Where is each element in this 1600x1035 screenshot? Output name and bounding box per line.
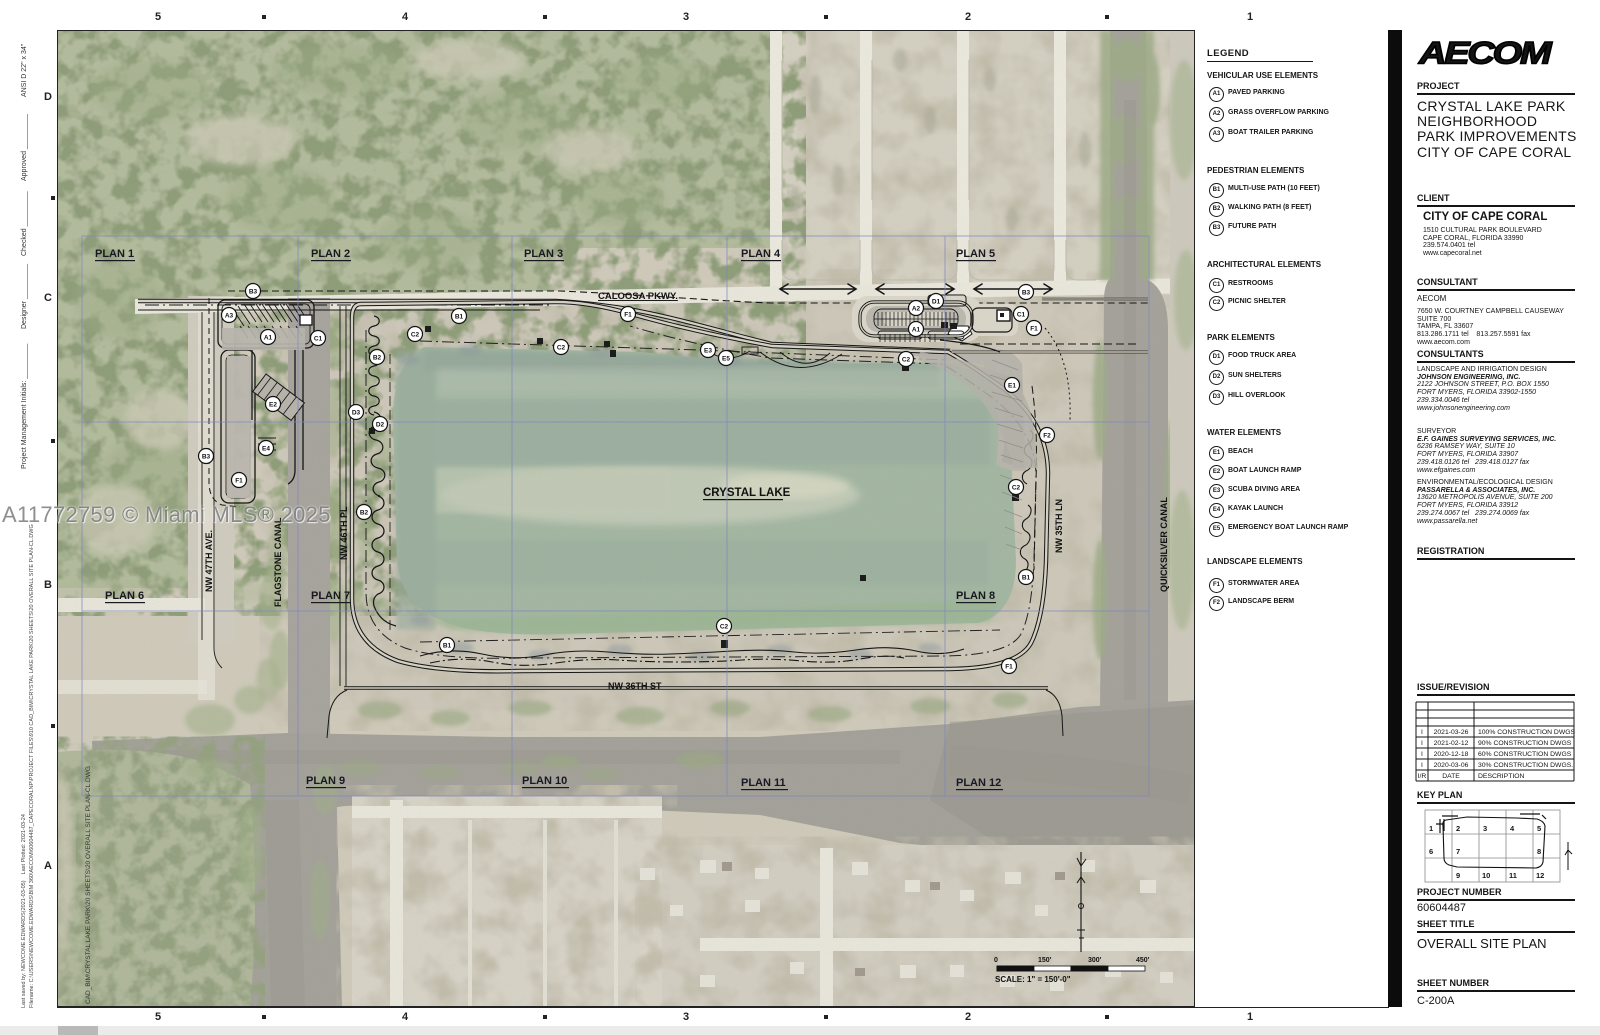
svg-text:6: 6 bbox=[1429, 847, 1433, 856]
svg-text:PLAN 2: PLAN 2 bbox=[311, 248, 350, 260]
svg-text:PLAN 8: PLAN 8 bbox=[956, 590, 995, 602]
svg-text:I: I bbox=[1421, 762, 1423, 769]
svg-text:2021-02-12: 2021-02-12 bbox=[1434, 740, 1469, 747]
svg-text:I: I bbox=[1421, 751, 1423, 758]
svg-text:E2: E2 bbox=[269, 402, 277, 409]
svg-text:PLAN 4: PLAN 4 bbox=[741, 248, 781, 260]
svg-text:E4: E4 bbox=[262, 446, 270, 453]
svg-text:C2: C2 bbox=[411, 332, 420, 339]
svg-text:A2: A2 bbox=[912, 306, 921, 313]
svg-text:CALOOSA PKWY.: CALOOSA PKWY. bbox=[598, 291, 678, 302]
svg-text:C1: C1 bbox=[314, 336, 323, 343]
svg-text:B1: B1 bbox=[455, 314, 464, 321]
svg-text:C2: C2 bbox=[902, 357, 911, 364]
svg-text:12: 12 bbox=[1536, 871, 1544, 880]
svg-text:2020-03-06: 2020-03-06 bbox=[1434, 762, 1469, 769]
svg-text:PLAN 9: PLAN 9 bbox=[306, 775, 345, 787]
svg-text:60% CONSTRUCTION DWGS: 60% CONSTRUCTION DWGS bbox=[1478, 751, 1572, 758]
svg-text:9: 9 bbox=[1456, 871, 1460, 880]
svg-text:B2: B2 bbox=[360, 510, 369, 517]
svg-text:E1: E1 bbox=[1008, 383, 1016, 390]
svg-text:CAD_BIM\CRYSTAL LAKE PARK\20 S: CAD_BIM\CRYSTAL LAKE PARK\20 SHEETS\20 O… bbox=[85, 766, 92, 1004]
svg-text:450': 450' bbox=[1136, 957, 1150, 964]
svg-text:5: 5 bbox=[1537, 824, 1541, 833]
svg-text:150': 150' bbox=[1038, 957, 1052, 964]
svg-text:F1: F1 bbox=[1005, 664, 1013, 671]
svg-text:1: 1 bbox=[1429, 824, 1433, 833]
svg-text:2: 2 bbox=[1456, 824, 1460, 833]
svg-text:CRYSTAL LAKE: CRYSTAL LAKE bbox=[703, 487, 791, 499]
svg-text:F1: F1 bbox=[624, 312, 632, 319]
svg-text:C2: C2 bbox=[1012, 485, 1021, 492]
svg-text:D3: D3 bbox=[352, 410, 361, 417]
svg-text:D1: D1 bbox=[932, 299, 941, 306]
svg-text:QUICKSILVER CANAL: QUICKSILVER CANAL bbox=[1159, 497, 1169, 592]
svg-text:NW 35TH LN: NW 35TH LN bbox=[1054, 499, 1064, 553]
svg-text:10: 10 bbox=[1482, 871, 1490, 880]
svg-text:PLAN 10: PLAN 10 bbox=[522, 775, 567, 787]
svg-text:B3: B3 bbox=[249, 289, 258, 296]
svg-text:A1: A1 bbox=[912, 327, 921, 334]
svg-text:8: 8 bbox=[1537, 847, 1541, 856]
svg-text:A1: A1 bbox=[264, 335, 273, 342]
svg-text:PLAN 3: PLAN 3 bbox=[524, 248, 563, 260]
svg-text:B1: B1 bbox=[1022, 575, 1031, 582]
svg-text:FLAGSTONE CANAL: FLAGSTONE CANAL bbox=[273, 517, 283, 607]
svg-text:I/R: I/R bbox=[1418, 773, 1427, 780]
svg-text:90% CONSTRUCTION DWGS: 90% CONSTRUCTION DWGS bbox=[1478, 740, 1572, 747]
svg-text:4: 4 bbox=[1510, 824, 1515, 833]
svg-text:E3: E3 bbox=[704, 348, 712, 355]
svg-text:300': 300' bbox=[1088, 957, 1102, 964]
svg-text:NW 46TH PL: NW 46TH PL bbox=[339, 506, 349, 560]
svg-text:C2: C2 bbox=[720, 624, 729, 631]
svg-text:PLAN 7: PLAN 7 bbox=[311, 590, 350, 602]
svg-text:2021-03-26: 2021-03-26 bbox=[1434, 729, 1469, 736]
svg-text:F1: F1 bbox=[235, 478, 243, 485]
svg-text:PLAN 12: PLAN 12 bbox=[956, 777, 1001, 789]
svg-text:B1: B1 bbox=[443, 643, 452, 650]
svg-text:DATE: DATE bbox=[1442, 773, 1460, 780]
svg-text:D2: D2 bbox=[376, 422, 385, 429]
svg-text:I: I bbox=[1421, 729, 1423, 736]
svg-text:F2: F2 bbox=[1043, 433, 1051, 440]
svg-text:PLAN 1: PLAN 1 bbox=[95, 248, 134, 260]
svg-text:PLAN 5: PLAN 5 bbox=[956, 248, 995, 260]
svg-text:0: 0 bbox=[994, 957, 998, 964]
svg-text:DESCRIPTION: DESCRIPTION bbox=[1478, 773, 1525, 780]
svg-text:100% CONSTRUCTION DWGS: 100% CONSTRUCTION DWGS bbox=[1478, 729, 1576, 736]
svg-text:B3: B3 bbox=[1022, 290, 1031, 297]
svg-text:PLAN 11: PLAN 11 bbox=[741, 777, 786, 789]
svg-text:11: 11 bbox=[1509, 871, 1517, 880]
svg-text:I: I bbox=[1421, 740, 1423, 747]
svg-text:B2: B2 bbox=[373, 355, 382, 362]
svg-text:2020-12-18: 2020-12-18 bbox=[1434, 751, 1469, 758]
svg-text:F1: F1 bbox=[1030, 326, 1038, 333]
svg-text:30% CONSTRUCTION DWGS.: 30% CONSTRUCTION DWGS. bbox=[1478, 762, 1573, 769]
svg-text:NW 47TH AVE.: NW 47TH AVE. bbox=[204, 530, 214, 592]
svg-text:PLAN 6: PLAN 6 bbox=[105, 590, 144, 602]
svg-text:SCALE: 1" = 150'-0": SCALE: 1" = 150'-0" bbox=[995, 975, 1071, 984]
svg-text:7: 7 bbox=[1456, 847, 1460, 856]
svg-text:C1: C1 bbox=[1017, 312, 1026, 319]
svg-text:3: 3 bbox=[1483, 824, 1487, 833]
svg-text:B3: B3 bbox=[202, 454, 211, 461]
svg-text:NW 36TH ST: NW 36TH ST bbox=[608, 681, 662, 691]
svg-text:A3: A3 bbox=[225, 313, 234, 320]
svg-text:C2: C2 bbox=[557, 345, 566, 352]
svg-text:E5: E5 bbox=[722, 356, 730, 363]
